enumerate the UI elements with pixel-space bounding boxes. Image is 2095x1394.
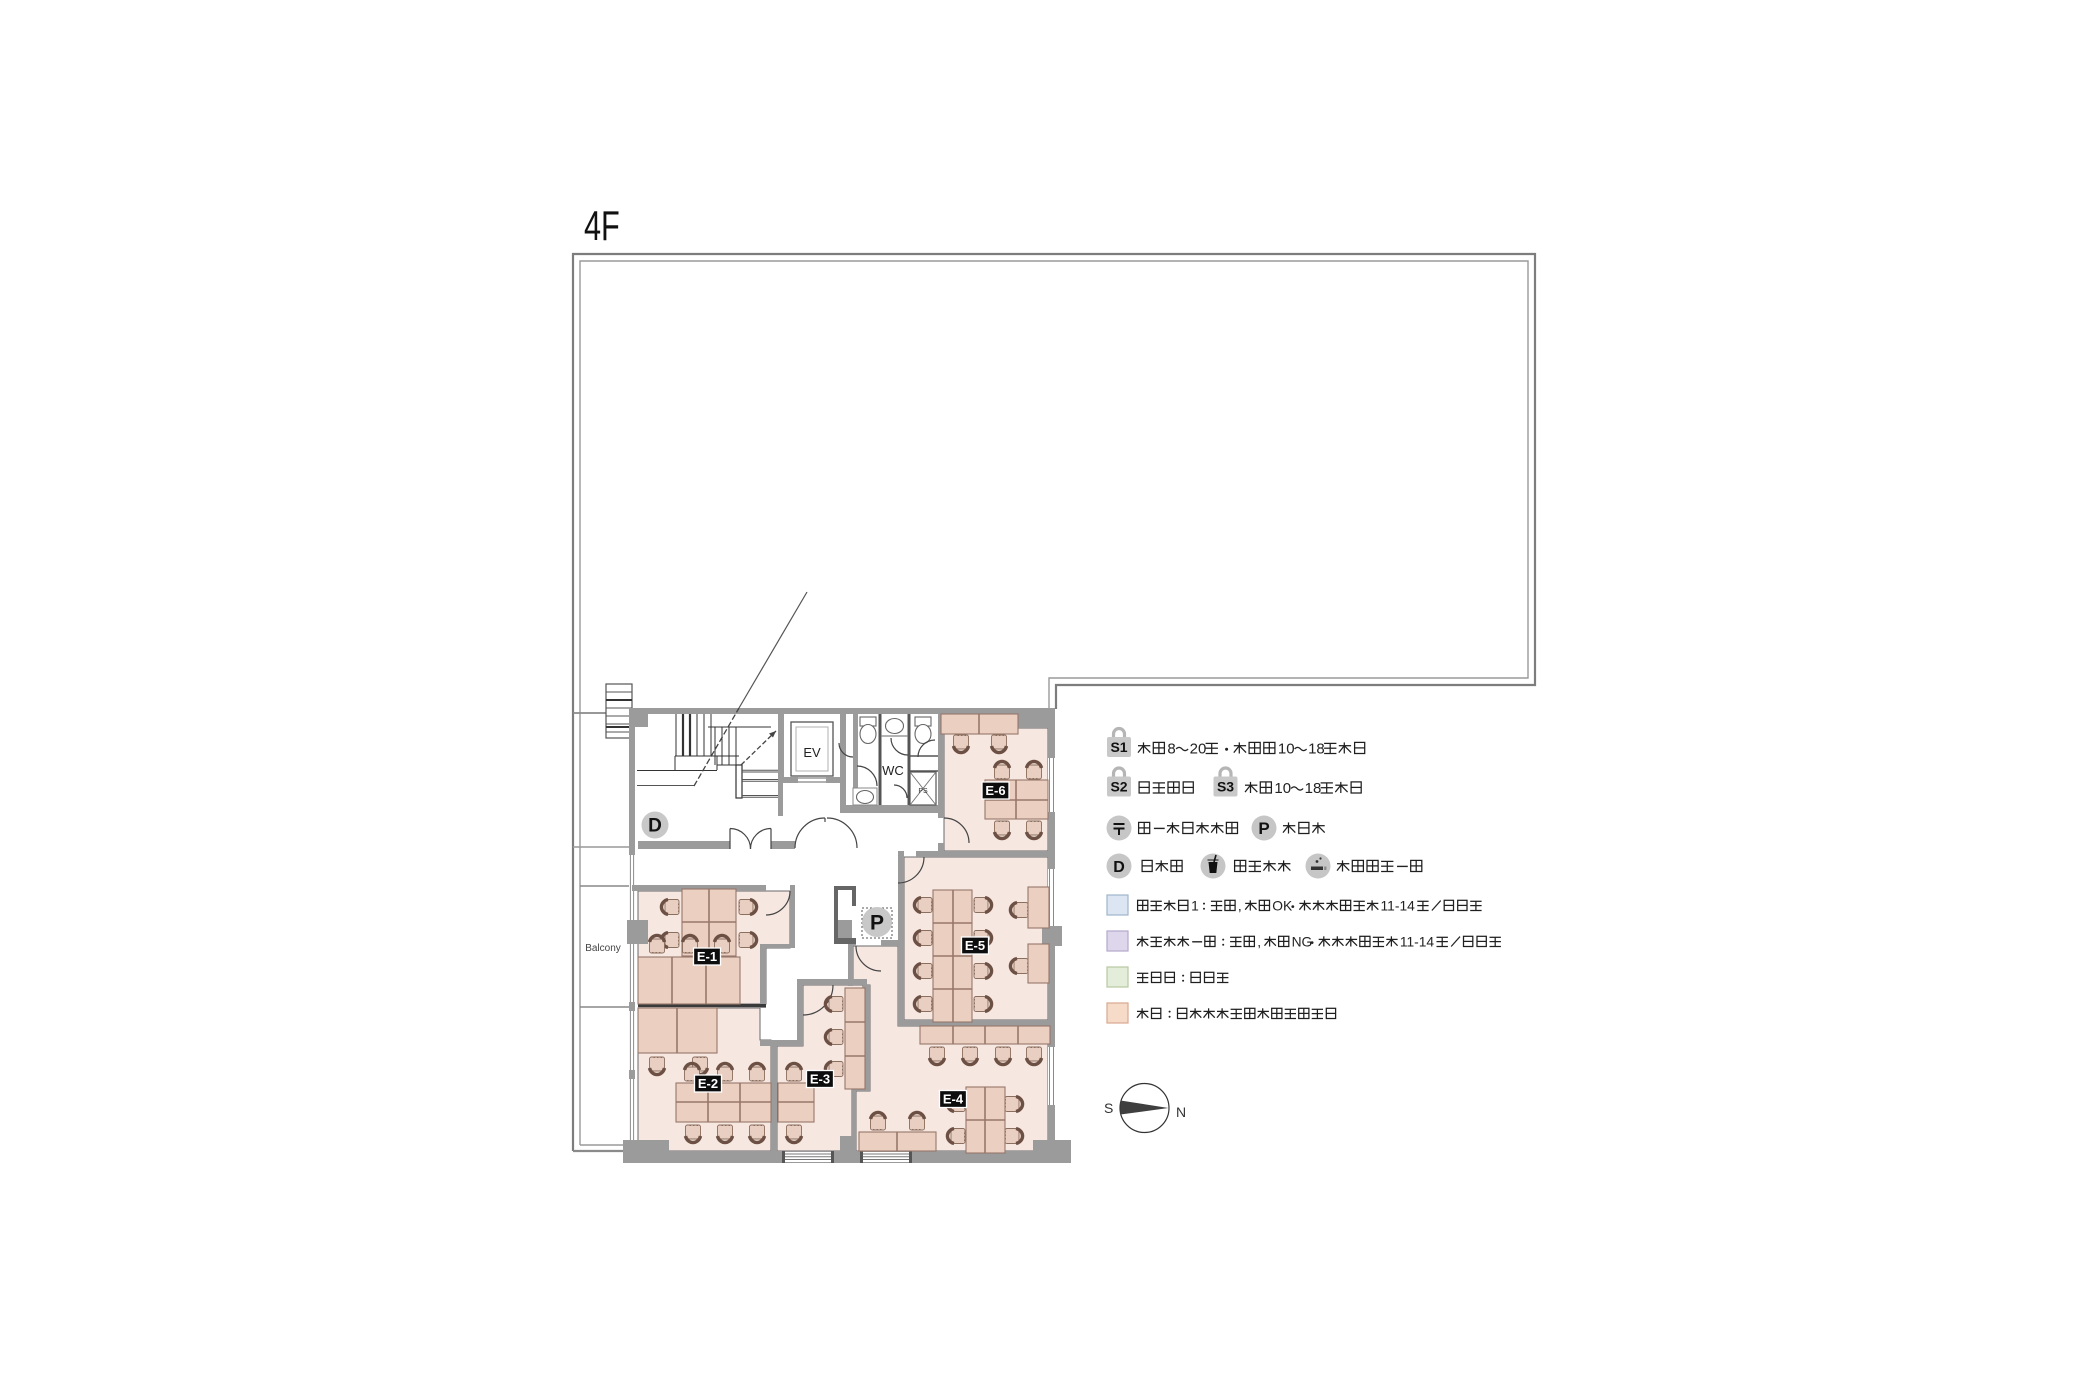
svg-text:PS: PS <box>918 788 928 795</box>
svg-text:E-6: E-6 <box>985 783 1005 798</box>
svg-text:10: 10 <box>1278 741 1295 758</box>
svg-text:,: , <box>1238 899 1242 914</box>
svg-text:E-4: E-4 <box>943 1092 964 1107</box>
svg-text:E-1: E-1 <box>697 949 717 964</box>
svg-text:NG: NG <box>1292 935 1313 950</box>
svg-text:8: 8 <box>1167 741 1175 758</box>
svg-text:E-3: E-3 <box>810 1072 830 1087</box>
svg-text:1: 1 <box>1191 899 1199 914</box>
svg-text:18: 18 <box>1305 780 1322 797</box>
svg-text:18: 18 <box>1308 741 1325 758</box>
svg-text:OK: OK <box>1272 899 1293 914</box>
svg-text:N: N <box>1176 1104 1186 1120</box>
svg-text:D: D <box>1113 859 1125 876</box>
svg-text:P: P <box>1258 819 1269 838</box>
svg-text:10: 10 <box>1274 780 1291 797</box>
svg-text:4F: 4F <box>584 202 620 249</box>
svg-text:S1: S1 <box>1110 739 1127 755</box>
svg-text:E-5: E-5 <box>965 938 985 953</box>
svg-text:D: D <box>648 816 662 837</box>
svg-text:P: P <box>870 912 884 935</box>
svg-text:11-14: 11-14 <box>1400 935 1435 950</box>
svg-text:S: S <box>1104 1100 1113 1116</box>
svg-text:E-2: E-2 <box>698 1076 718 1091</box>
svg-text:20: 20 <box>1190 741 1207 758</box>
svg-text:11-14: 11-14 <box>1381 899 1416 914</box>
svg-text:WC: WC <box>882 763 904 778</box>
svg-text:,: , <box>1257 935 1261 950</box>
svg-text:S2: S2 <box>1110 779 1127 795</box>
svg-text:S3: S3 <box>1217 779 1234 795</box>
svg-text:Balcony: Balcony <box>585 943 621 954</box>
svg-text:EV: EV <box>803 745 821 760</box>
